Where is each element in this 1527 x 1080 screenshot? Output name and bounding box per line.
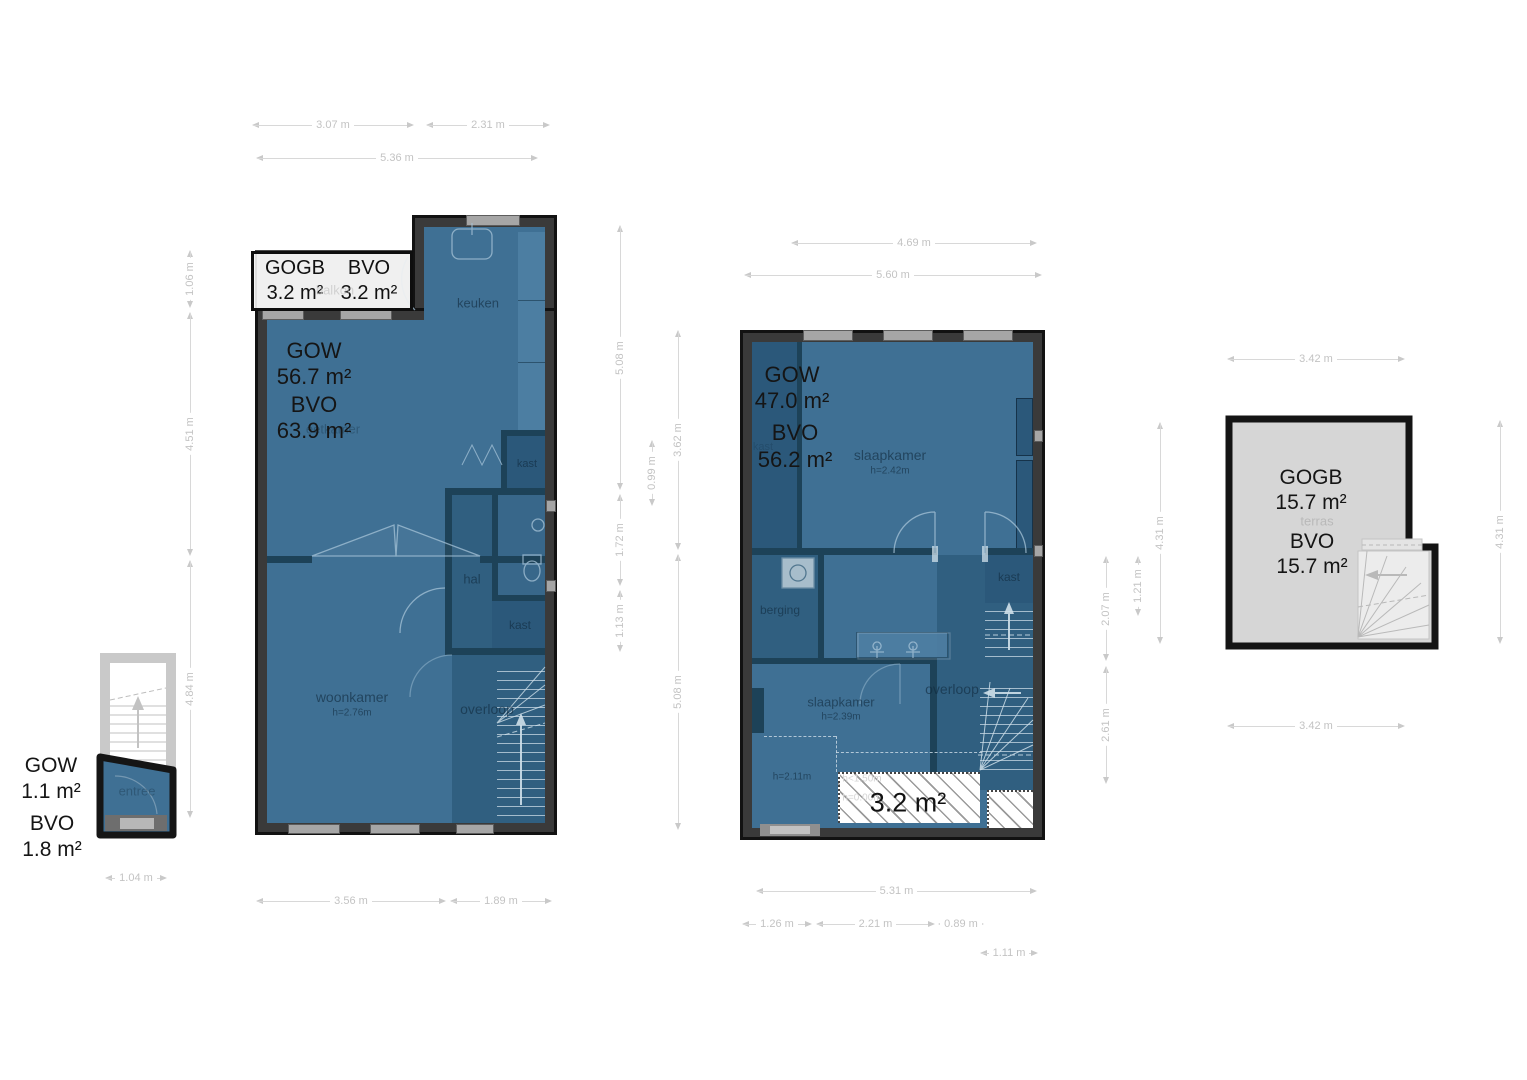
dim-3-42m-bottom: 3.42 m xyxy=(1227,718,1405,734)
dim-4-51m: 4.51 m xyxy=(182,312,198,556)
room-height-slaapkamer1: h=2.42m xyxy=(870,466,909,477)
dim-1-11m: 1.11 m xyxy=(980,945,1038,961)
double-door-icon xyxy=(312,525,396,556)
room-label-kast-b: kast xyxy=(509,618,531,632)
dim-1-26m: 1.26 m xyxy=(742,916,812,932)
dim-5-08m-a: 5.08 m xyxy=(612,225,628,490)
entree-bvo-value: 1.8 m² xyxy=(4,838,100,862)
tap-icon xyxy=(906,642,920,658)
counter-outline xyxy=(858,633,950,659)
room-label-berging: berging xyxy=(760,603,800,617)
stair-arrow-up xyxy=(1004,602,1014,614)
dim-2-07m: 2.07 m xyxy=(1098,556,1114,661)
folding-door-icon xyxy=(462,445,502,465)
dim-3-56m: 3.56 m xyxy=(256,893,446,909)
door-arc xyxy=(985,512,1026,553)
roof-bvo-value: 15.7 m² xyxy=(1260,555,1364,579)
height-zone-line xyxy=(836,736,837,772)
low-height-hatch xyxy=(987,790,1033,828)
floor2-gow-label: GOW xyxy=(740,362,844,388)
zone-height-label: h=2.11m xyxy=(773,772,811,783)
floor1-gow-label: GOW xyxy=(262,338,366,364)
dim-4-84m: 4.84 m xyxy=(182,560,198,818)
floor1-bvo-value: 63.9 m² xyxy=(262,418,366,444)
dim-3-07m: 3.07 m xyxy=(252,117,414,133)
entree-gow-value: 1.1 m² xyxy=(3,780,99,804)
height-zone-line xyxy=(836,752,982,753)
room-height-woonkamer: h=2.76m xyxy=(332,708,371,719)
dim-3-42m-top: 3.42 m xyxy=(1227,351,1405,367)
gogb-value: 3.2 m² xyxy=(267,281,324,306)
double-door-icon xyxy=(396,525,480,556)
dim-5-36m: 5.36 m xyxy=(256,150,538,166)
dim-4-31m-right: 4.31 m xyxy=(1492,420,1508,644)
room-label-kast-a: kast xyxy=(517,458,537,470)
dim-4-69m: 4.69 m xyxy=(791,235,1037,251)
floor1-bvo-label: BVO xyxy=(262,392,366,418)
hatch-area-value: 3.2 m² xyxy=(870,788,947,819)
door-arc xyxy=(410,655,452,697)
roof-bvo-label: BVO xyxy=(1260,530,1364,554)
dim-0-99m: 0.99 m xyxy=(644,440,660,506)
door-arc xyxy=(894,512,935,553)
room-label-overloop-floor1: overloop xyxy=(460,701,514,717)
dim-4-31m-left: 4.31 m xyxy=(1152,422,1168,644)
dim-1-89m: 1.89 m xyxy=(450,893,552,909)
entree-door xyxy=(120,818,154,829)
dim-1-13m: 1.13 m xyxy=(612,590,628,652)
dim-1-72m: 1.72 m xyxy=(612,494,628,586)
toilet-tank xyxy=(523,555,541,564)
dim-1-21m: 1.21 m xyxy=(1130,556,1146,616)
balcony-area-label-box: GOGB BVO 3.2 m² 3.2 m² xyxy=(251,251,413,311)
room-label-woonkamer: woonkamer xyxy=(316,689,388,705)
gogb-title: GOGB xyxy=(265,256,325,281)
roof-gogb-label: GOGB xyxy=(1259,466,1363,490)
dim-5-08m-b: 5.08 m xyxy=(670,554,686,830)
dim-5-60m: 5.60 m xyxy=(744,267,1042,283)
room-label-balkon: balkon xyxy=(316,283,354,298)
entree-gow-label: GOW xyxy=(3,754,99,778)
roof-gogb-value: 15.7 m² xyxy=(1259,491,1363,515)
dim-2-21m: 2.21 m xyxy=(816,916,935,932)
dim-5-31m: 5.31 m xyxy=(756,883,1037,899)
bvo-title: BVO xyxy=(348,256,390,281)
room-label-slaapkamer2: slaapkamer xyxy=(807,695,874,710)
floor2-bvo-label: BVO xyxy=(743,420,847,446)
dim-2-61m: 2.61 m xyxy=(1098,666,1114,784)
entree-bvo-label: BVO xyxy=(4,812,100,836)
door-arc xyxy=(400,588,445,633)
room-label-terras: terras xyxy=(1300,514,1333,529)
room-label-overloop-floor2: overloop xyxy=(925,681,979,697)
dim-2-31m: 2.31 m xyxy=(426,117,550,133)
entree-plan xyxy=(95,648,180,843)
terrace-stairs xyxy=(1358,551,1429,639)
washer-icon xyxy=(782,558,814,588)
floor2-bvo-value: 56.2 m² xyxy=(743,447,847,473)
dim-0-89m: 0.89 m xyxy=(938,916,984,932)
tap-icon xyxy=(870,642,884,658)
room-label-hal: hal xyxy=(463,572,480,587)
dim-1-06m: 1.06 m xyxy=(182,250,198,308)
dim-3-62m: 3.62 m xyxy=(670,330,686,550)
height-zone-line xyxy=(764,736,836,737)
room-label-entree: entree xyxy=(119,784,156,799)
room-label-kast-right: kast xyxy=(998,570,1020,584)
floorplan-canvas: balkon xyxy=(0,0,1527,1080)
dim-1-04m: 1.04 m xyxy=(105,870,167,886)
floor1-gow-value: 56.7 m² xyxy=(262,364,366,390)
floor2-gow-value: 47.0 m² xyxy=(740,388,844,414)
room-label-slaapkamer1: slaapkamer xyxy=(854,447,926,463)
stair-fan xyxy=(980,682,1033,770)
washbasin-icon xyxy=(532,519,544,531)
lowzone-label-a: h<1.50m xyxy=(842,774,881,785)
room-label-keuken: keuken xyxy=(457,296,499,311)
room-height-slaapkamer2: h=2.39m xyxy=(821,712,860,723)
